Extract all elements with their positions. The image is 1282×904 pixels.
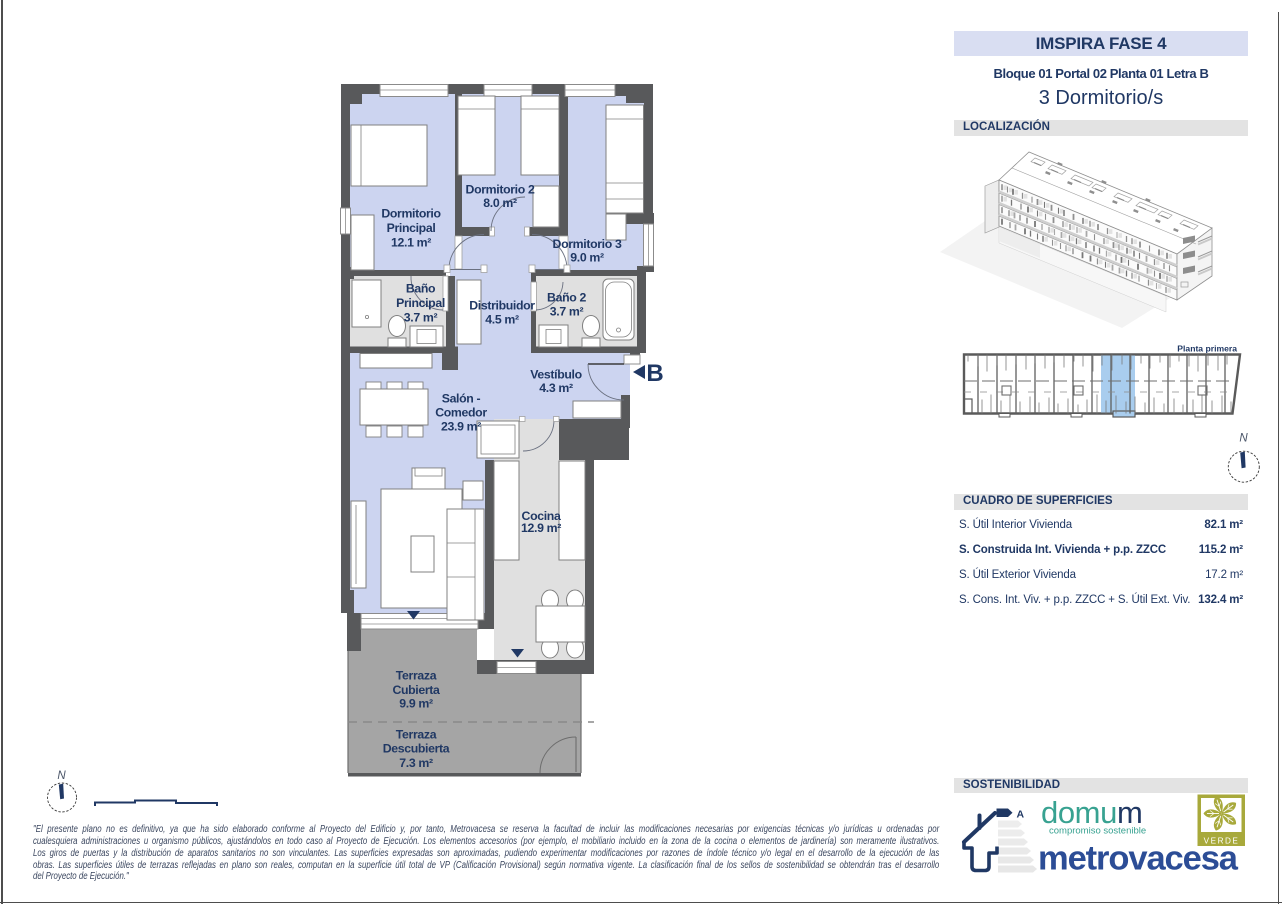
svg-text:A: A (1017, 809, 1025, 821)
svg-text:metrovacesa: metrovacesa (1038, 840, 1239, 878)
svg-text:compromiso sostenible: compromiso sostenible (1049, 826, 1146, 837)
